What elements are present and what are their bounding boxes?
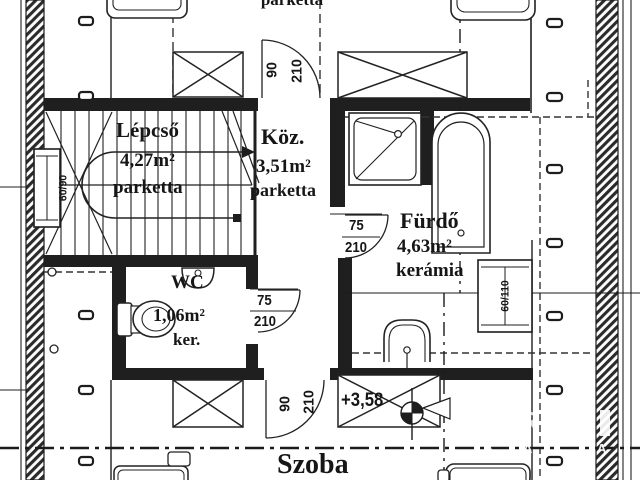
window-left bbox=[34, 149, 60, 227]
wc-name-label: WC bbox=[171, 273, 204, 292]
door-top-height-label: 210 bbox=[290, 59, 305, 83]
arrow-start-dot bbox=[233, 214, 241, 222]
window-right-label: 60/110 bbox=[501, 280, 512, 311]
symbol-circles bbox=[48, 268, 58, 353]
stairs-name-label: Lépcső bbox=[116, 120, 179, 141]
floor-plan: parketta Lépcső 4,27m² parketta Köz. 3,5… bbox=[0, 0, 640, 480]
flue-box-bottom-left bbox=[173, 380, 243, 427]
bottom-right-small-item bbox=[438, 470, 449, 480]
knee-wall-lines bbox=[44, 0, 594, 478]
bathroom-area-label: 4,63m² bbox=[397, 237, 452, 256]
arrow-head bbox=[242, 146, 255, 158]
shower-tray bbox=[349, 113, 421, 185]
door-wc-height-label: 210 bbox=[254, 314, 276, 329]
door-bath-width-label: 75 bbox=[349, 218, 364, 233]
stairs-floor-label: parketta bbox=[113, 178, 183, 197]
hall-name-label: Köz. bbox=[261, 126, 304, 148]
stairs-area-label: 4,27m² bbox=[120, 151, 175, 170]
hall-area-label: 3,51m² bbox=[256, 157, 311, 176]
wc-area-label: 1,06m² bbox=[153, 306, 205, 324]
watermark-letter-2: A bbox=[523, 441, 532, 456]
window-left-label: 60/90 bbox=[59, 175, 70, 201]
flue-box-top-left bbox=[173, 52, 243, 97]
watermark-letter-1: A bbox=[484, 441, 493, 456]
watermark-bar bbox=[600, 410, 610, 436]
door-bottom-width-label: 90 bbox=[278, 396, 293, 412]
exterior-wall-left bbox=[26, 0, 44, 480]
watermark-letter-3: K bbox=[554, 441, 563, 456]
bottom-left-small-item bbox=[168, 452, 190, 466]
watermark-letter-5: R bbox=[520, 406, 539, 437]
flue-box-top-right bbox=[338, 52, 467, 98]
door-wc-width-label: 75 bbox=[257, 293, 272, 308]
watermark-letter-4: A bbox=[597, 441, 606, 456]
plan-linework bbox=[0, 0, 640, 480]
washbasin bbox=[384, 320, 430, 368]
bathroom-name-label: Fürdő bbox=[400, 210, 459, 232]
door-top-width-label: 90 bbox=[265, 62, 280, 78]
room-name-label: Szoba bbox=[277, 451, 349, 479]
top-room-floor-label: parketta bbox=[250, 0, 334, 8]
level-marker-label: +3,58 bbox=[341, 391, 383, 410]
door-bottom-height-label: 210 bbox=[302, 390, 317, 414]
hall-floor-label: parketta bbox=[250, 181, 316, 199]
door-bath-height-label: 210 bbox=[345, 240, 367, 255]
wc-floor-label: ker. bbox=[173, 331, 200, 348]
bathroom-floor-label: kerámia bbox=[396, 261, 464, 280]
exterior-wall-right bbox=[596, 0, 618, 480]
